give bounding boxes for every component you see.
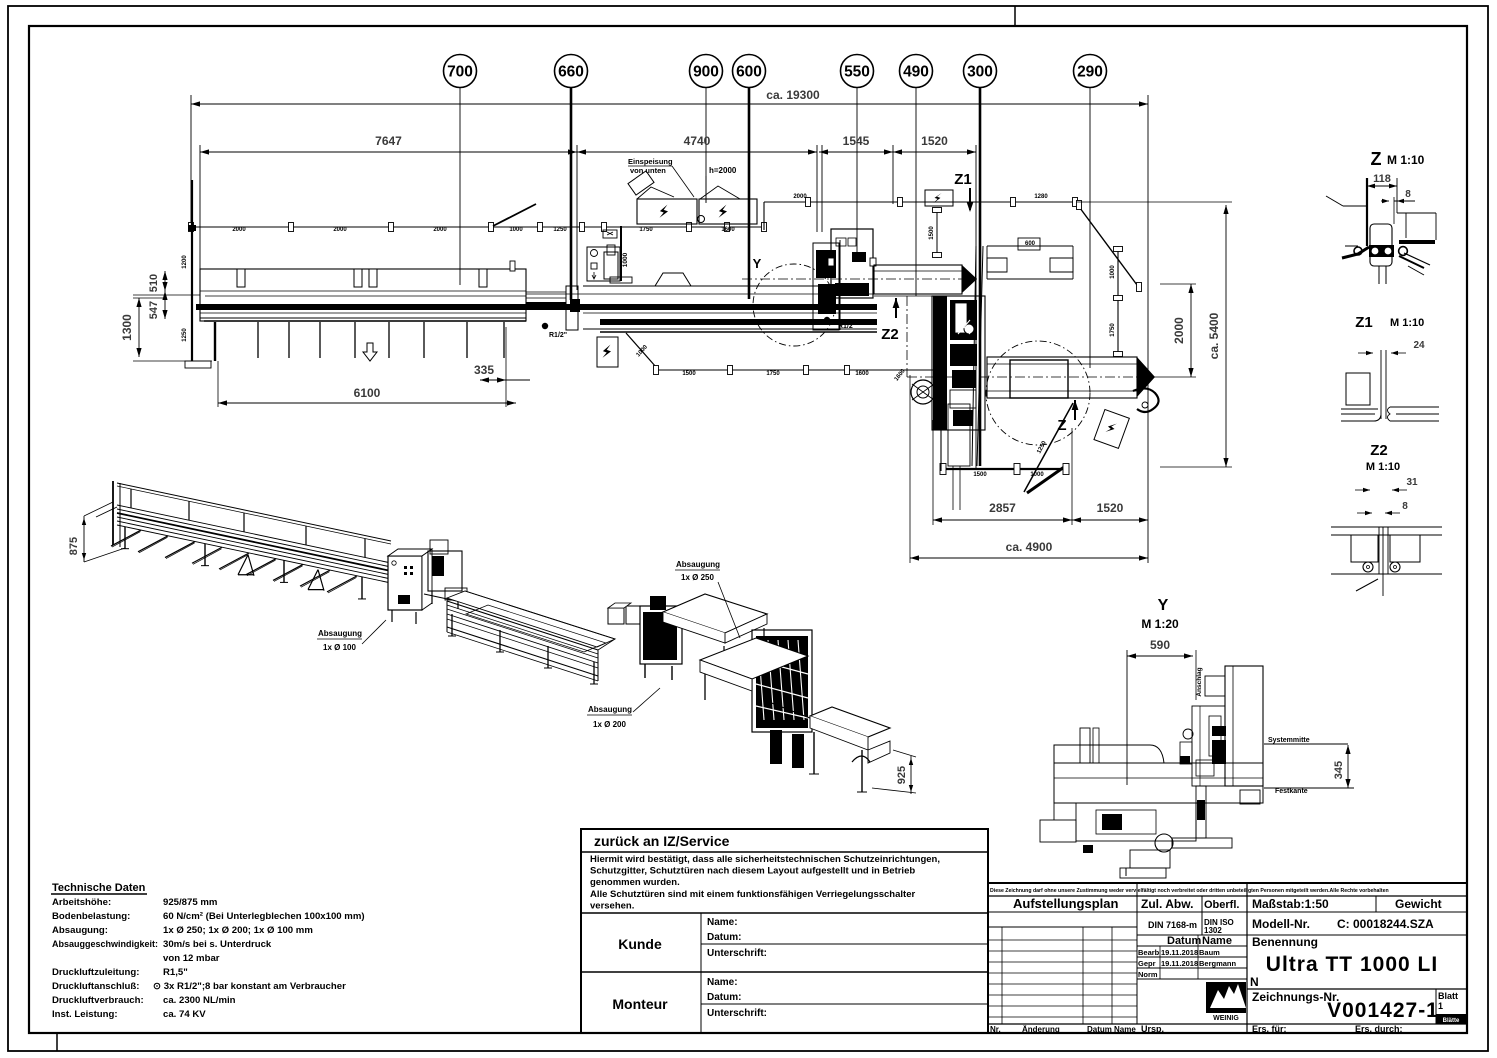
- svg-text:Absaugung: Absaugung: [588, 705, 632, 714]
- svg-text:2000: 2000: [333, 227, 347, 233]
- svg-text:Absaugung: Absaugung: [676, 560, 720, 569]
- svg-text:1520: 1520: [921, 134, 948, 148]
- svg-text:660: 660: [558, 64, 584, 81]
- svg-text:⊙ 3x R1/2";8 bar konstant am V: ⊙ 3x R1/2";8 bar konstant am Verbraucher: [153, 981, 346, 992]
- svg-text:1250: 1250: [553, 227, 567, 233]
- svg-text:31: 31: [1406, 477, 1418, 488]
- svg-text:Gewicht: Gewicht: [1395, 897, 1442, 911]
- svg-text:1500: 1500: [682, 371, 696, 377]
- svg-text:ca. 5400: ca. 5400: [1207, 312, 1221, 359]
- svg-text:1000: 1000: [509, 227, 523, 233]
- svg-text:1302: 1302: [1204, 926, 1222, 935]
- svg-text:M 1:20: M 1:20: [1141, 617, 1179, 631]
- svg-text:118: 118: [1373, 173, 1391, 185]
- svg-text:Schutzgitter, Schutztüren nach: Schutzgitter, Schutztüren nach diesem La…: [590, 866, 915, 877]
- svg-text:zurück an IZ/Service: zurück an IZ/Service: [594, 833, 730, 849]
- svg-text:Name: Name: [1114, 1025, 1136, 1034]
- svg-text:2000: 2000: [942, 413, 948, 427]
- svg-text:Gepr: Gepr: [1138, 959, 1156, 968]
- svg-text:700: 700: [447, 64, 473, 81]
- svg-text:R1,5": R1,5": [163, 967, 188, 978]
- svg-text:Z: Z: [1057, 417, 1066, 434]
- svg-text:Diese Zeichnung darf ohne unse: Diese Zeichnung darf ohne unsere Zustimm…: [990, 888, 1389, 894]
- svg-text:Kunde: Kunde: [618, 936, 662, 952]
- svg-text:Datum:: Datum:: [707, 992, 741, 1003]
- svg-text:Monteur: Monteur: [612, 996, 668, 1012]
- svg-text:Inst. Leistung:: Inst. Leistung:: [52, 1009, 118, 1020]
- svg-text:510: 510: [148, 274, 160, 292]
- svg-text:Name:: Name:: [707, 977, 738, 988]
- svg-text:30m/s bei s. Unterdruck: 30m/s bei s. Unterdruck: [163, 939, 272, 950]
- svg-text:ca. 4900: ca. 4900: [1006, 540, 1053, 554]
- svg-text:Oberfl.: Oberfl.: [1204, 899, 1239, 911]
- svg-text:versehen.: versehen.: [590, 900, 634, 911]
- svg-text:24: 24: [1413, 340, 1425, 351]
- svg-text:2000: 2000: [433, 227, 447, 233]
- svg-text:N: N: [1250, 975, 1259, 989]
- svg-text:Z1: Z1: [1355, 314, 1373, 331]
- svg-text:600: 600: [736, 64, 762, 81]
- svg-text:Datum: Datum: [1167, 935, 1201, 947]
- svg-text:2000: 2000: [232, 227, 246, 233]
- svg-text:1250: 1250: [182, 328, 188, 342]
- svg-text:4740: 4740: [684, 134, 711, 148]
- svg-text:1: 1: [1438, 1001, 1443, 1011]
- svg-text:Absaugung: Absaugung: [318, 629, 362, 638]
- svg-text:ca. 19300: ca. 19300: [766, 88, 820, 102]
- svg-text:19.11.2018: 19.11.2018: [1161, 948, 1198, 957]
- svg-text:Bearb: Bearb: [1138, 948, 1160, 957]
- svg-text:Maßstab:1:50: Maßstab:1:50: [1252, 897, 1329, 911]
- svg-text:h=2000: h=2000: [709, 166, 737, 175]
- svg-text:Unterschrift:: Unterschrift:: [707, 948, 767, 959]
- svg-text:Festkante: Festkante: [1275, 788, 1308, 795]
- svg-text:8: 8: [1405, 189, 1411, 200]
- svg-text:1500: 1500: [973, 472, 987, 478]
- svg-text:Y: Y: [753, 256, 762, 271]
- svg-text:1000: 1000: [622, 252, 629, 267]
- svg-text:875: 875: [68, 537, 80, 555]
- svg-text:2857: 2857: [989, 501, 1016, 515]
- svg-text:Benennung: Benennung: [1252, 935, 1318, 949]
- svg-text:300: 300: [967, 64, 993, 81]
- svg-text:1x Ø 200: 1x Ø 200: [593, 720, 626, 729]
- svg-text:2000: 2000: [1172, 317, 1186, 344]
- svg-text:M 1:10: M 1:10: [1387, 153, 1425, 167]
- svg-text:Ursp.: Ursp.: [1141, 1024, 1164, 1034]
- svg-text:1545: 1545: [843, 134, 870, 148]
- svg-text:1200: 1200: [182, 255, 188, 269]
- svg-text:2000: 2000: [793, 194, 807, 200]
- svg-text:Baum: Baum: [1199, 948, 1220, 957]
- svg-text:1x Ø 250; 1x Ø 200; 1x Ø 100 m: 1x Ø 250; 1x Ø 200; 1x Ø 100 mm: [163, 925, 313, 936]
- svg-text:Datum:: Datum:: [707, 932, 741, 943]
- svg-text:Nr.: Nr.: [990, 1025, 1001, 1034]
- svg-text:Druckluftzuleitung:: Druckluftzuleitung:: [52, 967, 139, 978]
- svg-text:490: 490: [903, 64, 929, 81]
- svg-text:Technische Daten: Technische Daten: [52, 882, 146, 894]
- svg-text:1520: 1520: [1097, 501, 1124, 515]
- svg-text:Blätte: Blätte: [1443, 1018, 1460, 1024]
- svg-text:1280: 1280: [1034, 194, 1048, 200]
- svg-text:1500: 1500: [929, 226, 935, 240]
- svg-text:R1/2": R1/2": [549, 332, 567, 339]
- svg-text:7647: 7647: [375, 134, 402, 148]
- svg-text:19.11.2018: 19.11.2018: [1161, 959, 1198, 968]
- svg-text:Bergmann: Bergmann: [1199, 959, 1237, 968]
- svg-text:1300: 1300: [120, 314, 134, 341]
- svg-text:900: 900: [693, 64, 719, 81]
- svg-text:Einspeisung: Einspeisung: [628, 157, 673, 166]
- svg-text:M 1:10: M 1:10: [1390, 317, 1424, 329]
- svg-text:Name: Name: [1202, 935, 1232, 947]
- svg-text:1600: 1600: [721, 227, 735, 233]
- svg-text:Name:: Name:: [707, 917, 738, 928]
- svg-text:925/875 mm: 925/875 mm: [163, 897, 217, 908]
- svg-text:M 1:10: M 1:10: [1366, 461, 1400, 473]
- svg-text:C: 00018244.SZA: C: 00018244.SZA: [1337, 917, 1434, 931]
- svg-text:8: 8: [1402, 501, 1408, 512]
- svg-text:550: 550: [844, 64, 870, 81]
- svg-text:Systemmitte: Systemmitte: [1268, 737, 1310, 744]
- svg-text:1600: 1600: [855, 371, 869, 377]
- svg-text:Blatt: Blatt: [1438, 991, 1458, 1001]
- svg-text:600: 600: [1025, 241, 1036, 247]
- svg-text:Anschlag: Anschlag: [1196, 667, 1203, 696]
- svg-text:R1/2": R1/2": [838, 323, 856, 330]
- svg-text:Datum: Datum: [1087, 1025, 1112, 1034]
- svg-text:Hiermit wird bestätigt, dass a: Hiermit wird bestätigt, dass alle sicher…: [590, 854, 940, 865]
- svg-text:Druckluftanschluß:: Druckluftanschluß:: [52, 981, 139, 992]
- svg-text:925: 925: [896, 766, 908, 784]
- svg-text:Ers. durch:: Ers. durch:: [1355, 1024, 1403, 1034]
- svg-text:Zul. Abw.: Zul. Abw.: [1141, 897, 1193, 911]
- svg-text:genommen wurden.: genommen wurden.: [590, 877, 680, 888]
- svg-text:von 12 mbar: von 12 mbar: [163, 953, 220, 964]
- svg-text:Druckluftverbrauch:: Druckluftverbrauch:: [52, 995, 144, 1006]
- svg-text:Y: Y: [1158, 597, 1169, 614]
- svg-text:Absauggeschwindigkeit:: Absauggeschwindigkeit:: [52, 939, 158, 950]
- svg-text:290: 290: [1077, 64, 1103, 81]
- svg-text:WEINIG: WEINIG: [1213, 1015, 1239, 1022]
- svg-text:547: 547: [148, 301, 160, 319]
- svg-text:ca. 2300 NL/min: ca. 2300 NL/min: [163, 995, 236, 1006]
- svg-text:Bodenbelastung:: Bodenbelastung:: [52, 911, 130, 922]
- svg-text:Z1: Z1: [954, 171, 972, 188]
- svg-text:DIN 7168-m: DIN 7168-m: [1148, 920, 1197, 930]
- svg-text:Norm: Norm: [1138, 970, 1158, 979]
- svg-text:1000: 1000: [1110, 265, 1116, 279]
- svg-text:Z2: Z2: [1370, 442, 1388, 459]
- svg-text:ca. 74 KV: ca. 74 KV: [163, 1009, 206, 1020]
- svg-text:Unterschrift:: Unterschrift:: [707, 1008, 767, 1019]
- svg-text:1750: 1750: [1110, 323, 1116, 337]
- svg-text:60 N/cm² (Bei Unterlegblechen: 60 N/cm² (Bei Unterlegblechen 100x100 mm…: [163, 911, 365, 922]
- svg-text:Z2: Z2: [881, 326, 899, 343]
- svg-text:Ers. für:: Ers. für:: [1252, 1024, 1287, 1034]
- svg-text:Modell-Nr.: Modell-Nr.: [1252, 917, 1310, 931]
- svg-text:Aufstellungsplan: Aufstellungsplan: [1013, 896, 1119, 911]
- svg-text:1x Ø 250: 1x Ø 250: [681, 573, 714, 582]
- svg-text:Alle Schutztüren sind mit eine: Alle Schutztüren sind mit einem funktion…: [590, 889, 915, 900]
- svg-text:Z: Z: [1371, 149, 1382, 169]
- svg-text:590: 590: [1150, 638, 1170, 652]
- svg-text:Änderung: Änderung: [1022, 1025, 1060, 1034]
- svg-text:1750: 1750: [766, 371, 780, 377]
- svg-text:1750: 1750: [639, 227, 653, 233]
- svg-text:1000: 1000: [1030, 472, 1044, 478]
- svg-text:V001427-1: V001427-1: [1327, 999, 1439, 1022]
- svg-text:Ultra TT 1000 LI: Ultra TT 1000 LI: [1266, 953, 1438, 976]
- svg-text:335: 335: [474, 363, 494, 377]
- svg-text:von unten: von unten: [630, 166, 666, 175]
- svg-text:6100: 6100: [354, 386, 381, 400]
- svg-text:1x Ø 100: 1x Ø 100: [323, 643, 356, 652]
- svg-text:345: 345: [1333, 761, 1345, 779]
- svg-text:Absaugung:: Absaugung:: [52, 925, 108, 936]
- svg-text:Arbeitshöhe:: Arbeitshöhe:: [52, 897, 111, 908]
